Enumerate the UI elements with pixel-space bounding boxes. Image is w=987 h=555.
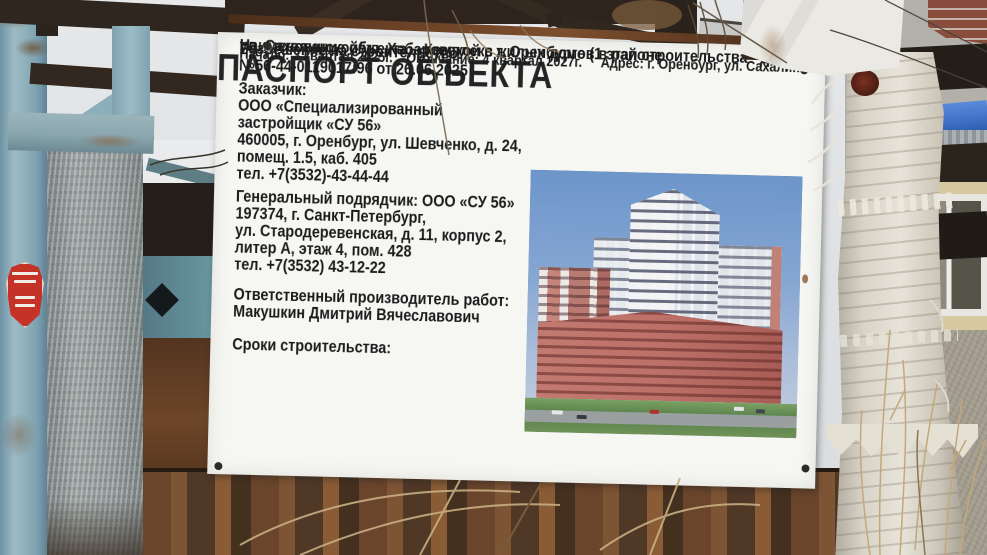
render-car xyxy=(576,414,586,418)
construction-site-photo: ПАСПОРТ ОБЪЕКТА Наименование объекта: «К… xyxy=(0,0,987,555)
terms-label: Сроки строительства: xyxy=(232,335,517,359)
contractor-block: Генеральный подрядчик: ООО «СУ 56» 19737… xyxy=(234,187,520,279)
building-rendering xyxy=(524,170,802,439)
rust-stain xyxy=(802,274,808,283)
trunk-knot-hole xyxy=(851,70,879,96)
galvanized-column xyxy=(47,143,143,555)
dark-beam xyxy=(143,183,218,258)
render-car xyxy=(650,410,659,414)
bolt xyxy=(801,464,809,472)
bolt xyxy=(214,462,222,470)
render-car xyxy=(756,410,765,414)
rust-patch xyxy=(0,380,47,490)
dried-brush xyxy=(612,0,682,30)
responsible-block: Ответственный производитель работ: Макуш… xyxy=(233,285,518,326)
render-car xyxy=(552,410,563,414)
sign-details: Разрешение на строительство: №56-44-0119… xyxy=(232,33,524,360)
customer-block: Заказчик: ООО «Специализированный застро… xyxy=(236,80,523,189)
render-car xyxy=(734,407,744,411)
construction-passport-sign: ПАСПОРТ ОБЪЕКТА Наименование объекта: «К… xyxy=(207,32,826,489)
column-shadow xyxy=(47,498,143,555)
blue-rail xyxy=(8,112,155,154)
